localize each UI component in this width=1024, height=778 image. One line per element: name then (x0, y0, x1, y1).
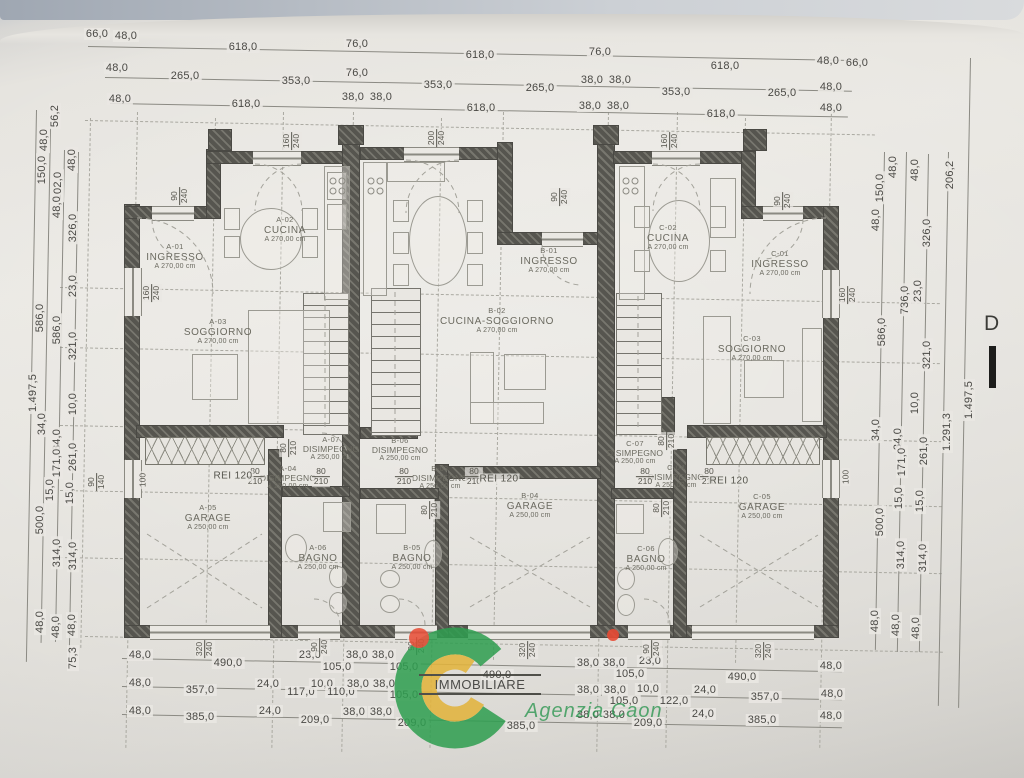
room-id: C-03 (718, 335, 786, 344)
dimension-label: 385,0 (746, 714, 779, 726)
door-size-label: 90240 (407, 637, 427, 655)
dimension-label: 171,0 (51, 447, 63, 480)
furniture (327, 172, 347, 200)
dimension-label: 48,0 (107, 93, 133, 105)
room-height: A 250,00 cm (507, 512, 553, 520)
dimension-label: 105,0 (608, 695, 641, 707)
dimension-label: 265,0 (169, 70, 202, 82)
wall (339, 126, 363, 144)
dimension-label: 261,0 (918, 435, 930, 468)
wall (209, 130, 231, 150)
hatched-wall-strip (145, 437, 265, 465)
dimension-label: 38,0 (605, 100, 631, 112)
staircase (371, 288, 421, 436)
dimension-label: 618,0 (465, 102, 498, 114)
room-height: A 250,00 cm (625, 565, 666, 573)
room-label: A-01INGRESSOA 270,00 cm (146, 243, 204, 271)
dimension-label: 209,0 (299, 714, 332, 726)
dimension-label: 38,0 (607, 74, 633, 86)
room-name: DISIMPEGNO (303, 444, 359, 454)
dimension-label: 38,0 (575, 684, 601, 696)
room-label: C-03SOGGIORNOA 270,00 cm (718, 335, 786, 363)
dimension-label: 38,0 (368, 706, 394, 718)
door-size-label: 100 (841, 468, 850, 486)
wall (498, 143, 512, 242)
dimension-label: 385,0 (184, 711, 217, 723)
room-height: A 250,00 cm (185, 524, 231, 532)
dimension-label: 261,0 (67, 441, 79, 474)
room-id: B-04 (507, 492, 553, 501)
window-opening (628, 625, 670, 640)
room-name: DISIMPEGNO (648, 472, 704, 482)
window-opening (404, 147, 459, 162)
dimension-label: 48,0 (104, 62, 130, 74)
room-height: A 270,00 cm (647, 244, 689, 252)
photographed-floor-plan: 66,048,0618,076,0618,076,0618,048,066,04… (0, 0, 1024, 778)
door-size-label: 80210 (636, 467, 654, 487)
room-height: A 250,00 cm (372, 455, 428, 463)
fire-rating-label: REI 120 (479, 474, 520, 485)
room-height: A 270,00 cm (146, 263, 204, 271)
door-size-label: 90240 (170, 187, 190, 205)
room-name: GARAGE (185, 513, 231, 525)
room-label: B-06DISIMPEGNOA 250,00 cm (372, 437, 428, 463)
room-label: B-04GARAGEA 250,00 cm (507, 492, 553, 520)
opening-height: 240 (206, 640, 215, 658)
dimension-label: 38,0 (575, 657, 601, 669)
dimension-label: 48,0 (50, 614, 62, 640)
dimension-label: 15,0 (64, 480, 76, 506)
room-name: BAGNO (625, 554, 666, 566)
dimension-label: 618,0 (227, 41, 260, 53)
dimension-label: 76,0 (344, 67, 370, 79)
dimension-label: 34,0 (870, 417, 882, 443)
dimension-label: 490,0 (481, 669, 514, 681)
section-marker-label: D (984, 312, 999, 336)
room-name: GARAGE (507, 501, 553, 513)
furniture (329, 592, 347, 614)
room-height: A 250,00 cm (303, 454, 359, 462)
dimension-label: 1.497,5 (963, 379, 975, 421)
door-size-label: 80210 (652, 499, 672, 517)
dimension-line (122, 714, 842, 728)
dimension-label: 326,0 (67, 212, 79, 245)
furniture (710, 250, 726, 272)
fire-rating-label: REI 120 (213, 471, 254, 482)
wall (612, 489, 678, 498)
window-opening (124, 268, 142, 316)
dimension-label: 48,0 (818, 710, 844, 722)
dimension-label: 34,0 (36, 411, 48, 437)
dimension-label: 326,0 (921, 217, 933, 250)
opening-height: 240 (181, 187, 190, 205)
wall (744, 130, 766, 150)
dimension-label: 353,0 (422, 79, 455, 91)
furniture (634, 250, 650, 272)
furniture (192, 354, 238, 400)
furniture (744, 360, 784, 398)
room-label: A-04DISIMPEGNOA 250,00 cm (260, 465, 316, 491)
dimension-label: 38,0 (341, 706, 367, 718)
opening-width: 100 (138, 471, 147, 489)
hatched-wall-strip (706, 437, 820, 465)
dimension-line (897, 152, 907, 652)
room-label: A-03SOGGIORNOA 270,00 cm (184, 318, 252, 346)
dimension-label: 38,0 (575, 709, 601, 721)
furniture (363, 162, 387, 296)
door-size-label: 320240 (754, 642, 774, 660)
dimension-label: 105,0 (614, 668, 647, 680)
room-name: DISIMPEGNO (372, 445, 428, 455)
dimension-label: 38,0 (345, 678, 371, 690)
dimension-label: 618,0 (464, 49, 497, 61)
room-height: A 270,00 cm (264, 236, 306, 244)
furniture (224, 236, 240, 258)
dimension-label: 48,0 (818, 81, 844, 93)
dimension-label: 150,0 (36, 154, 48, 187)
furniture (617, 594, 635, 616)
dimension-label: 48,0 (127, 705, 153, 717)
furniture (380, 570, 400, 588)
dimension-label: 314,0 (895, 539, 907, 572)
dimension-label: 38,0 (577, 100, 603, 112)
wall (594, 126, 618, 144)
dimension-label: 48,0 (909, 157, 921, 183)
dimension-label: 48,0 (910, 615, 922, 641)
window-opening (152, 206, 194, 221)
window-opening (468, 625, 590, 640)
opening-height: 240 (438, 129, 447, 147)
dimension-label: 15,0 (44, 477, 56, 503)
room-id: A-02 (264, 216, 306, 225)
room-name: SOGGIORNO (184, 327, 252, 339)
furniture (387, 162, 445, 182)
dimension-label: 24,0 (255, 678, 281, 690)
fire-rating-label: REI 120 (709, 476, 750, 487)
dimension-label: 357,0 (749, 691, 782, 703)
dimension-label: 48,0 (818, 102, 844, 114)
window-opening (652, 151, 700, 166)
dimension-label: 586,0 (34, 302, 46, 335)
dimension-label: 48,0 (815, 55, 841, 67)
opening-height: 240 (784, 192, 793, 210)
dimension-line (122, 686, 842, 700)
dimension-label: 48,0 (51, 194, 63, 220)
dimension-label: 48,0 (890, 612, 902, 638)
dimension-label: 48,0 (38, 127, 50, 153)
dimension-label: 206,2 (944, 159, 956, 192)
furniture (393, 264, 409, 286)
dimension-label: 490,0 (212, 657, 245, 669)
furniture (504, 354, 546, 390)
room-label: A-02CUCINAA 270,00 cm (264, 216, 306, 244)
dimension-label: 265,0 (524, 82, 557, 94)
furniture (467, 232, 483, 254)
dimension-label: 618,0 (705, 108, 738, 120)
furniture (323, 502, 351, 532)
opening-height: 140 (98, 473, 107, 491)
dimension-label: 66,0 (844, 57, 870, 69)
room-name: DISIMPEGNO (412, 473, 468, 483)
dimension-label: 122,0 (658, 695, 691, 707)
dimension-label: 586,0 (51, 314, 63, 347)
furniture (467, 200, 483, 222)
furniture (224, 208, 240, 230)
furniture (327, 204, 347, 230)
dimension-label: 75,3 (67, 645, 79, 671)
room-id: B-01 (520, 247, 578, 256)
dimension-label: 48,0 (113, 30, 139, 42)
dimension-label: 48,0 (34, 609, 46, 635)
dimension-label: 321,0 (67, 330, 79, 363)
dimension-label: 314,0 (67, 540, 79, 573)
stamp-red-dot (607, 629, 619, 641)
window-opening (692, 625, 814, 640)
floor-plan: 66,048,0618,076,0618,076,0618,048,066,04… (0, 0, 1024, 778)
dimension-label: 105,0 (388, 661, 421, 673)
wall (688, 426, 826, 437)
room-label: C-04DISIMPEGNOA 250,00 cm (648, 464, 704, 490)
dimension-label: 353,0 (280, 75, 313, 87)
dimension-label: 48,0 (870, 207, 882, 233)
door-size-label: 80210 (312, 467, 330, 487)
opening-height: 210 (290, 439, 299, 457)
staircase (616, 293, 662, 435)
opening-height: 210 (431, 501, 440, 519)
dimension-label: 265,0 (766, 87, 799, 99)
furniture (380, 595, 400, 613)
opening-height: 240 (293, 132, 302, 150)
room-height: A 270,00 cm (440, 327, 554, 335)
room-label: A-06BAGNOA 250,00 cm (297, 544, 338, 572)
room-name: INGRESSO (751, 259, 809, 271)
room-label: A-07DISIMPEGNOA 250,00 cm (303, 436, 359, 462)
furniture (248, 310, 330, 424)
dimension-label: 66,0 (84, 28, 110, 40)
door-size-label: 160240 (660, 132, 680, 150)
opening-width: 100 (841, 468, 850, 486)
room-name: CUCINA-SOGGIORNO (440, 316, 554, 328)
opening-height: 210 (668, 432, 677, 450)
wall (660, 398, 674, 434)
dimension-line (105, 77, 852, 92)
furniture (470, 402, 544, 424)
door-size-label: 320240 (195, 640, 215, 658)
opening-height: 210 (312, 478, 330, 487)
room-height: A 250,00 cm (391, 564, 432, 572)
furniture (376, 504, 406, 534)
dimension-label: 24,0 (690, 708, 716, 720)
dimension-label: 209,0 (632, 717, 665, 729)
room-label: C-02CUCINAA 270,00 cm (647, 224, 689, 252)
dimension-label: 56,2 (49, 103, 61, 129)
room-name: CUCINA (264, 225, 306, 237)
dimension-label: 48,0 (66, 147, 78, 173)
room-name: DISIMPEGNO (607, 448, 663, 458)
dimension-label: 586,0 (876, 316, 888, 349)
wall (137, 426, 283, 437)
opening-height: 210 (395, 478, 413, 487)
room-name: SOGGIORNO (718, 344, 786, 356)
room-label: C-07DISIMPEGNOA 250,00 cm (607, 440, 663, 466)
dimension-label: 10,0 (67, 391, 79, 417)
dimension-label: 48,0 (887, 154, 899, 180)
door-size-label: 100 (138, 471, 147, 489)
opening-height: 240 (321, 638, 330, 656)
dimension-label: 48,0 (818, 660, 844, 672)
dimension-label: 76,0 (344, 38, 370, 50)
room-height: A 270,00 cm (751, 270, 809, 278)
window-opening (150, 625, 270, 640)
room-label: B-05BAGNOA 250,00 cm (391, 544, 432, 572)
furniture (802, 328, 822, 422)
room-label: C-01INGRESSOA 270,00 cm (751, 250, 809, 278)
room-height: A 250,00 cm (297, 564, 338, 572)
dimension-label: 24,0 (692, 684, 718, 696)
room-id: A-01 (146, 243, 204, 252)
opening-height: 240 (765, 642, 774, 660)
dimension-label: 23,0 (912, 278, 924, 304)
dimension-label: 618,0 (709, 60, 742, 72)
dimension-label: 48,0 (127, 649, 153, 661)
window-opening (253, 151, 301, 166)
room-name: CUCINA (647, 233, 689, 245)
door-size-label: 90240 (773, 192, 793, 210)
construction-line (80, 118, 91, 648)
dimension-label: 150,0 (874, 172, 886, 205)
room-id: C-02 (647, 224, 689, 233)
dimension-label: 500,0 (874, 506, 886, 539)
dimension-label: 500,0 (34, 504, 46, 537)
opening-height: 240 (418, 637, 427, 655)
room-label: B-01INGRESSOA 270,00 cm (520, 247, 578, 275)
door-size-label: 80210 (420, 501, 440, 519)
dimension-label: 171,0 (896, 446, 908, 479)
room-height: A 270,00 cm (718, 355, 786, 363)
furniture (467, 264, 483, 286)
room-name: DISIMPEGNO (260, 473, 316, 483)
room-label: C-06BAGNOA 250,00 cm (625, 545, 666, 573)
opening-height: 240 (653, 640, 662, 658)
room-id: A-03 (184, 318, 252, 327)
room-height: A 250,00 cm (648, 482, 704, 490)
dimension-label: 48,0 (66, 612, 78, 638)
opening-height: 240 (671, 132, 680, 150)
room-name: BAGNO (297, 553, 338, 565)
furniture (710, 206, 726, 228)
opening-height: 240 (561, 188, 570, 206)
door-size-label: 80210 (657, 432, 677, 450)
dimension-label: 1.497,5 (27, 372, 39, 414)
door-size-label: 90240 (550, 188, 570, 206)
dimension-label: 209,0 (396, 717, 429, 729)
room-height: A 270,00 cm (184, 338, 252, 346)
dimension-label: 48,0 (127, 677, 153, 689)
furniture (703, 316, 731, 424)
dimension-label: 10,0 (909, 390, 921, 416)
room-name: GARAGE (739, 502, 785, 514)
room-id: C-01 (751, 250, 809, 259)
dimension-label: 357,0 (184, 684, 217, 696)
dimension-label: 76,0 (587, 46, 613, 58)
opening-height: 240 (849, 286, 858, 304)
room-id: A-05 (185, 504, 231, 513)
room-name: INGRESSO (146, 252, 204, 264)
dimension-label: 105,0 (388, 689, 421, 701)
wall (598, 140, 614, 637)
door-size-label: 90240 (642, 640, 662, 658)
opening-height: 240 (153, 284, 162, 302)
dimension-label: 38,0 (368, 91, 394, 103)
door-size-label: 80210 (279, 439, 299, 457)
room-id: B-02 (440, 307, 554, 316)
dimension-label: 38,0 (601, 709, 627, 721)
room-id: C-06 (625, 545, 666, 554)
room-id: C-05 (739, 493, 785, 502)
construction-line (60, 557, 942, 574)
furniture (393, 200, 409, 222)
furniture (393, 232, 409, 254)
room-id: B-05 (391, 544, 432, 553)
dimension-label: 38,0 (370, 649, 396, 661)
door-size-label: 90140 (87, 473, 107, 491)
furniture (619, 166, 645, 300)
room-label: B-03DISIMPEGNOA 250,00 cm (412, 465, 468, 491)
room-label: B-02CUCINA-SOGGIORNOA 270,00 cm (440, 307, 554, 335)
dimension-label: 105,0 (321, 661, 354, 673)
dimension-label: 618,0 (230, 98, 263, 110)
room-height: A 270,00 cm (520, 267, 578, 275)
room-height: A 250,00 cm (739, 513, 785, 521)
dimension-label: 385,0 (505, 720, 538, 732)
door-size-label: 160240 (282, 132, 302, 150)
room-height: A 250,00 cm (260, 483, 316, 491)
furniture (409, 196, 467, 286)
door-size-label: 200240 (427, 129, 447, 147)
dimension-line (41, 128, 51, 643)
dimension-label: 736,0 (899, 284, 911, 317)
dimension-label: 353,0 (660, 86, 693, 98)
dimension-label: 48,0 (869, 608, 881, 634)
opening-height: 240 (529, 641, 538, 659)
room-label: C-05GARAGEA 250,00 cm (739, 493, 785, 521)
opening-height: 210 (663, 499, 672, 517)
dimension-label: 15,0 (893, 485, 905, 511)
dimension-label: 24,0 (257, 705, 283, 717)
dimension-label: 314,0 (51, 537, 63, 570)
dimension-label: 314,0 (917, 542, 929, 575)
room-name: BAGNO (391, 553, 432, 565)
door-size-label: 160240 (838, 286, 858, 304)
dimension-label: 23,0 (67, 273, 79, 299)
opening-height: 210 (636, 478, 654, 487)
dimension-label: 1.291,3 (941, 411, 953, 453)
dimension-label: 38,0 (340, 91, 366, 103)
room-name: INGRESSO (520, 256, 578, 268)
room-label: A-05GARAGEA 250,00 cm (185, 504, 231, 532)
room-id: A-06 (297, 544, 338, 553)
window-opening (822, 460, 840, 498)
room-height: A 250,00 cm (412, 483, 468, 491)
dimension-label: 15,0 (914, 488, 926, 514)
dimension-label: 48,0 (819, 688, 845, 700)
furniture (616, 504, 644, 534)
door-size-label: 160240 (142, 284, 162, 302)
dimension-label: 38,0 (344, 649, 370, 661)
section-marker-bar (989, 346, 996, 388)
door-size-label: 80210 (395, 467, 413, 487)
door-size-label: 320240 (518, 641, 538, 659)
